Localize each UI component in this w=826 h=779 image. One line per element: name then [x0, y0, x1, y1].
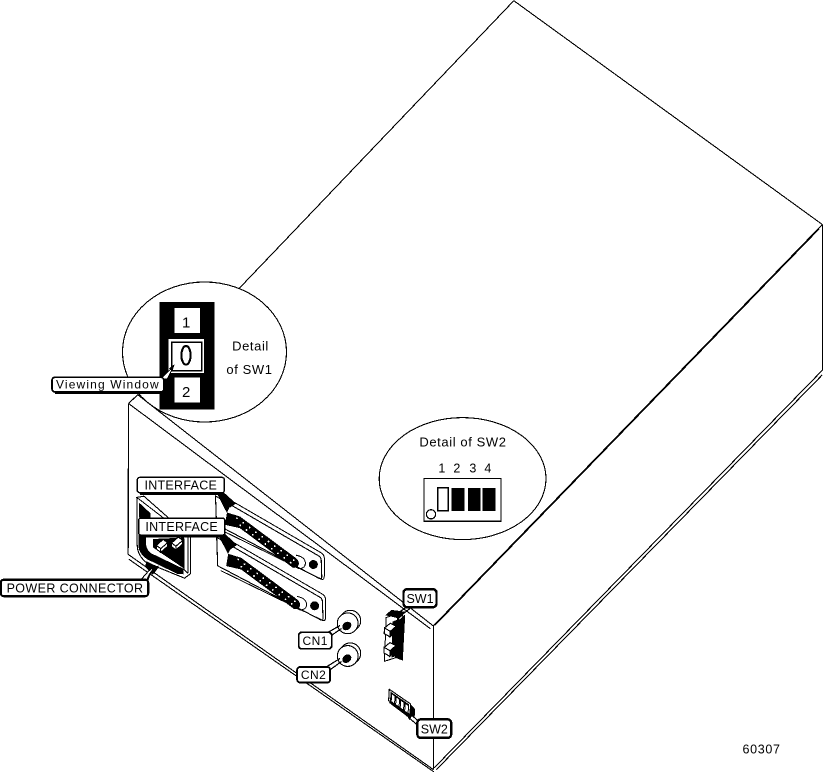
svg-text:INTERFACE: INTERFACE [145, 520, 218, 534]
svg-text:3: 3 [469, 462, 476, 476]
svg-text:Viewing Window: Viewing Window [56, 378, 160, 392]
svg-text:CN1: CN1 [302, 634, 328, 648]
svg-text:SW2: SW2 [421, 722, 448, 736]
svg-text:4: 4 [484, 462, 491, 476]
svg-text:1: 1 [438, 462, 445, 476]
svg-text:CN2: CN2 [301, 668, 327, 682]
svg-text:of SW1: of SW1 [226, 362, 272, 377]
svg-text:2: 2 [453, 462, 460, 476]
svg-text:INTERFACE: INTERFACE [144, 478, 217, 492]
svg-text:Detail of SW2: Detail of SW2 [419, 434, 506, 449]
svg-text:SW1: SW1 [406, 592, 433, 606]
svg-text:2: 2 [182, 384, 190, 401]
svg-text:1: 1 [182, 315, 190, 332]
svg-text:POWER CONNECTOR: POWER CONNECTOR [7, 582, 144, 596]
svg-text:Detail: Detail [232, 338, 269, 353]
svg-text:60307: 60307 [743, 743, 781, 757]
